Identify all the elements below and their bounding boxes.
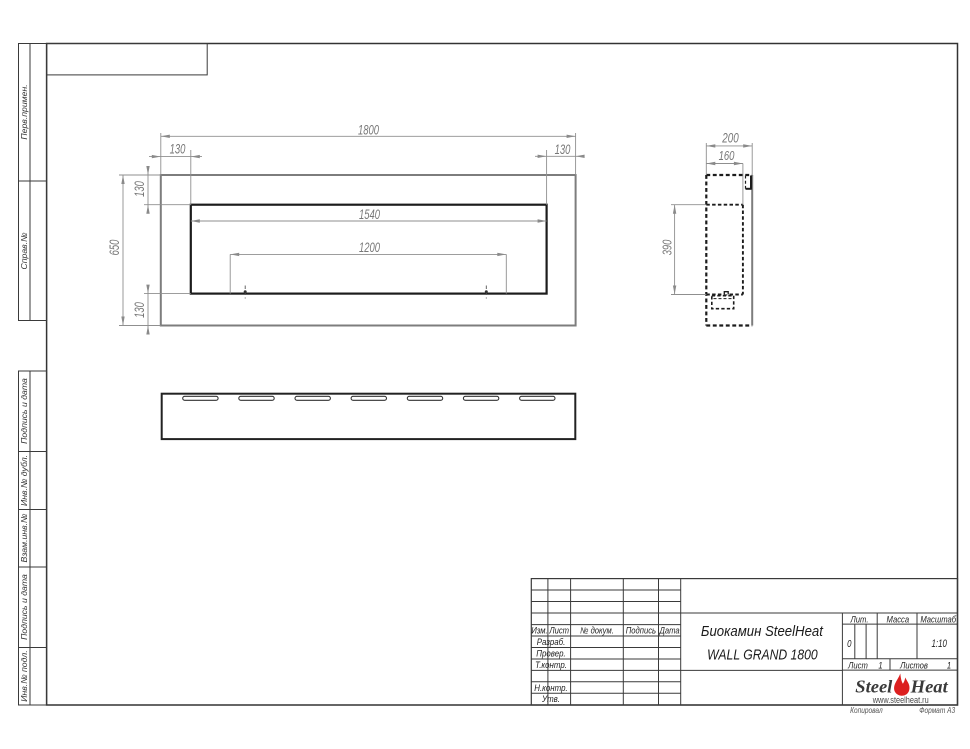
svg-text:Т.контр.: Т.контр. xyxy=(535,659,567,670)
svg-text:Провер.: Провер. xyxy=(536,648,565,659)
svg-text:Инв.№ дубл.: Инв.№ дубл. xyxy=(19,455,29,506)
svg-text:1:10: 1:10 xyxy=(931,638,947,651)
svg-text:Подпись и дата: Подпись и дата xyxy=(19,574,29,640)
svg-text:№ докум.: № докум. xyxy=(580,625,614,636)
svg-text:Биокамин SteelHeat: Биокамин SteelHeat xyxy=(701,622,824,639)
svg-text:www.steelheat.ru: www.steelheat.ru xyxy=(872,694,929,705)
svg-text:Масса: Масса xyxy=(887,614,910,625)
svg-text:Листов: Листов xyxy=(899,660,928,671)
svg-text:390: 390 xyxy=(661,239,675,255)
svg-text:1: 1 xyxy=(947,660,951,671)
svg-text:200: 200 xyxy=(721,130,739,146)
svg-text:0: 0 xyxy=(847,638,851,649)
svg-text:Взам.инв.№: Взам.инв.№ xyxy=(19,514,29,563)
svg-text:Инв.№ подл.: Инв.№ подл. xyxy=(19,650,29,702)
svg-text:Копировал: Копировал xyxy=(850,705,883,715)
svg-text:1540: 1540 xyxy=(359,207,380,222)
svg-text:Лит.: Лит. xyxy=(850,614,869,625)
svg-text:1: 1 xyxy=(878,660,882,671)
svg-text:1200: 1200 xyxy=(359,240,380,255)
svg-text:Справ.№: Справ.№ xyxy=(19,232,29,269)
svg-text:Перв.примен.: Перв.примен. xyxy=(19,84,29,139)
svg-text:Утв.: Утв. xyxy=(541,694,560,705)
svg-text:130: 130 xyxy=(133,181,148,197)
svg-text:Формат А3: Формат А3 xyxy=(919,705,955,715)
svg-text:Лист: Лист xyxy=(847,660,868,671)
svg-text:130: 130 xyxy=(170,142,186,157)
svg-text:130: 130 xyxy=(555,142,571,157)
svg-text:1800: 1800 xyxy=(358,123,379,138)
svg-text:Дата: Дата xyxy=(659,625,680,636)
svg-text:Изм.: Изм. xyxy=(531,625,547,636)
svg-text:Подпись: Подпись xyxy=(626,625,656,636)
svg-text:Подпись и дата: Подпись и дата xyxy=(19,378,29,444)
svg-text:160: 160 xyxy=(719,150,735,164)
svg-text:WALL GRAND 1800: WALL GRAND 1800 xyxy=(707,647,818,663)
svg-text:Разраб.: Разраб. xyxy=(537,636,566,647)
svg-text:Н.контр.: Н.контр. xyxy=(534,682,567,693)
svg-text:130: 130 xyxy=(133,302,148,318)
svg-text:650: 650 xyxy=(107,239,122,255)
svg-text:Лист: Лист xyxy=(548,625,569,636)
svg-text:Масштаб: Масштаб xyxy=(920,614,956,625)
